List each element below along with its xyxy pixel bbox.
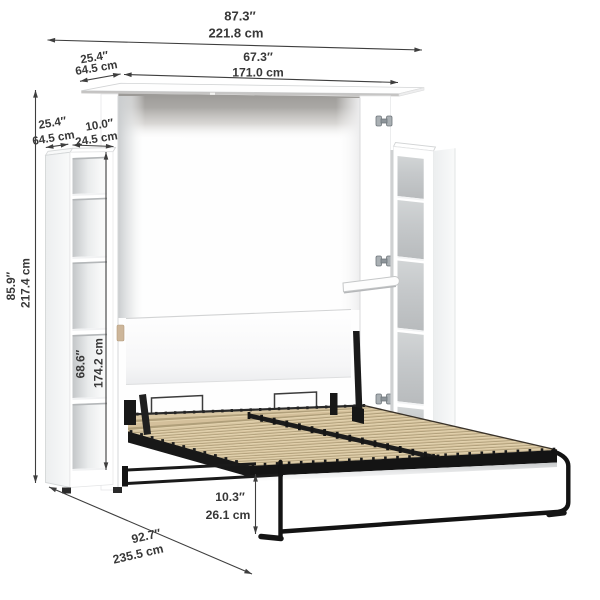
svg-text:171.0 cm: 171.0 cm <box>232 66 284 80</box>
svg-text:217.4 cm: 217.4 cm <box>19 258 33 308</box>
svg-text:85.9″: 85.9″ <box>4 271 18 300</box>
svg-text:87.3″: 87.3″ <box>224 9 256 24</box>
svg-text:10.3″: 10.3″ <box>215 490 245 504</box>
svg-text:68.6″: 68.6″ <box>74 349 88 378</box>
svg-text:221.8 cm: 221.8 cm <box>209 26 264 41</box>
svg-text:174.2 cm: 174.2 cm <box>92 338 106 388</box>
svg-text:26.1 cm: 26.1 cm <box>206 508 251 522</box>
svg-text:67.3″: 67.3″ <box>243 50 273 64</box>
